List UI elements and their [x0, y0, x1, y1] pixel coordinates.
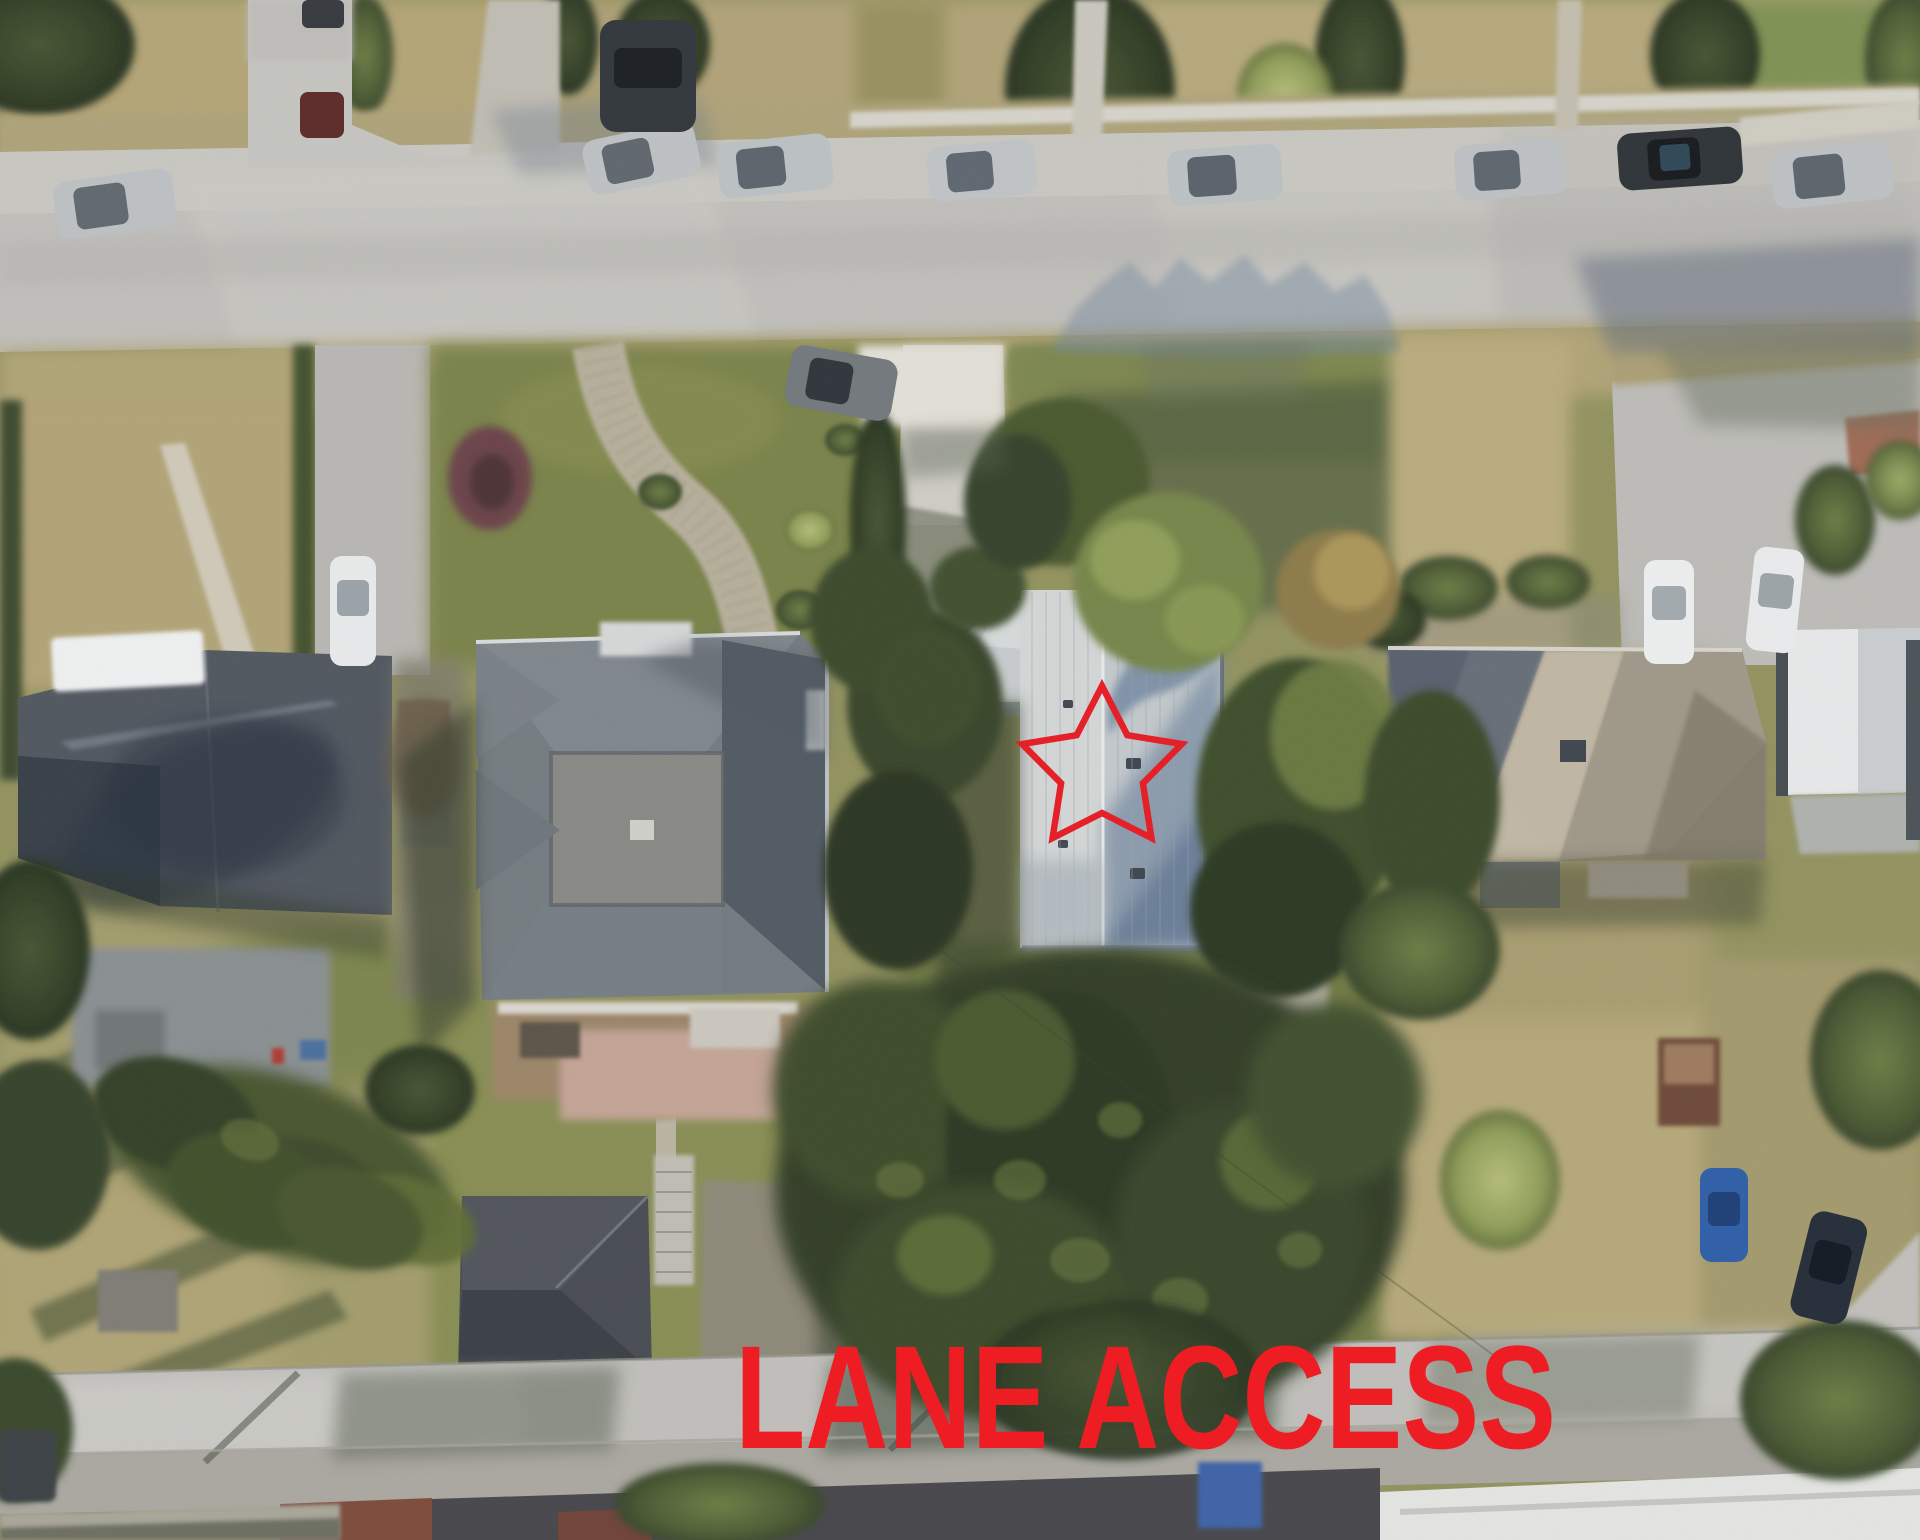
svg-text:LANE ACCESS: LANE ACCESS [735, 1316, 1556, 1480]
